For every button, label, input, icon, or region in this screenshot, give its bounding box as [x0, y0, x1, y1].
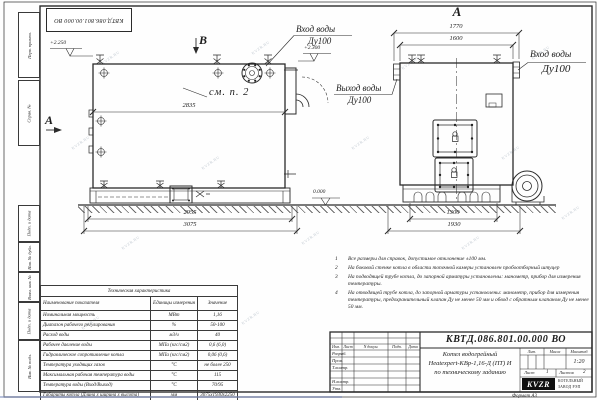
tech-cell: Температура уходящих газов [41, 361, 151, 371]
elevation-2250: +2.250 [50, 41, 66, 47]
tb-title-line2: Heatexpert-КВр-1,16-Д (ПТ) И [429, 361, 512, 368]
tb-sheets-value: 2 [583, 370, 586, 375]
tech-cell: 0,6 (6,0) [198, 341, 238, 351]
tb-row-utv: Утв. [332, 387, 341, 392]
tb-header-data: Дата [408, 345, 417, 349]
tech-cell: °С [151, 361, 198, 371]
tech-cell: 115 [198, 371, 238, 381]
view-b-label: В [199, 34, 207, 46]
tech-cell: МПа (кгс/см2) [151, 341, 198, 351]
tech-cell: МПа (кгс/см2) [151, 351, 198, 361]
dim-1600: 1600 [450, 36, 463, 43]
scan-artifact-line [0, 396, 342, 398]
tech-cell: °С [151, 371, 198, 381]
tb-row-tkontr: Т.контр. [332, 366, 348, 371]
tech-cell: МВт [151, 311, 198, 321]
note-text: Все размеры для справок, допустимое откл… [348, 256, 486, 263]
inlet-top-label-line1: Вход воды [296, 25, 335, 34]
tech-table-col-name: Наименование показателя [41, 297, 151, 311]
margin-stamp-label: Подп. и дата [27, 308, 32, 334]
note-number: 4 [335, 290, 348, 312]
tech-table-col-units: Единицы измерения [151, 297, 198, 311]
see-item-note: см. п. 2 [209, 88, 249, 99]
note-number: 1 [335, 256, 348, 263]
tech-cell: 1,16 [198, 311, 238, 321]
dim-3075: 3075 [184, 222, 197, 229]
inlet-right-label-line1: Вход воды [530, 51, 571, 61]
tb-scale-value: 1:20 [574, 359, 585, 365]
margin-stamp-label: Справ. № [26, 104, 31, 122]
tb-lit-label: Лит. [528, 350, 537, 354]
margin-stamp-podp-data-2: Подп. и дата [18, 302, 40, 340]
drawing-sheet: KVZR.RU KVZR.RU KVZR.RU KVZR.RU KVZR.RU … [0, 0, 600, 400]
tb-scale-label: Масштаб [570, 350, 587, 354]
tech-cell: 50-100 [198, 321, 238, 331]
tb-row-razrab: Разраб. [332, 352, 346, 357]
outlet-label-line2: Ду100 [348, 96, 371, 105]
notes-list: 1Все размеры для справок, допустимое отк… [335, 256, 591, 313]
margin-stamp-label: Инв. № дубл. [27, 245, 32, 270]
tech-cell: Расход воды [41, 331, 151, 341]
note-number: 2 [335, 265, 348, 272]
note-text: На отводящей трубе котла, до запорной ар… [348, 290, 591, 312]
tech-cell: % [151, 321, 198, 331]
elevation-0000: 0.000 [313, 190, 325, 196]
inlet-flange [242, 63, 262, 83]
format-note: Формат А3 [512, 394, 537, 399]
dim-2955: 2955 [184, 210, 197, 217]
tb-sheet-label: Лист [524, 371, 535, 376]
tb-mass-label: Масса [550, 350, 561, 354]
inlet-right-label-line2: Ду100 [542, 64, 570, 75]
note-text: На боковой стенке котла в области топочн… [348, 265, 559, 272]
margin-stamp-inv-dubl: Инв. № дубл. [18, 242, 40, 272]
kvzr-logo-text: KVZR [527, 380, 550, 389]
inlet-top-label-line2: Ду100 [308, 37, 331, 46]
tech-cell: не более 250 [198, 361, 238, 371]
tech-cell: °С [151, 381, 198, 391]
margin-stamp-label: Подп. и дата [27, 211, 32, 237]
dim-2835: 2835 [183, 103, 196, 110]
doc-number-stamp: КВТД.086.801.00.000 ВО [46, 8, 132, 32]
view-a-arrow-label: А [45, 114, 53, 126]
leader-lines [50, 36, 586, 206]
outlet-label-line1: Выход воды [336, 84, 381, 93]
margin-stamp-label: Инв. № подл. [27, 354, 32, 379]
tech-cell: 70/95 [198, 381, 238, 391]
dim-1770: 1770 [450, 24, 463, 31]
margin-stamp-label: Перв. примен. [27, 32, 32, 59]
margin-stamp-vzam-inv: Взам. инв. № [18, 272, 40, 302]
view-arrows [46, 38, 199, 133]
note-2: 2На боковой стенке котла в области топоч… [335, 265, 591, 272]
tb-title-line1: Котел водогрейный [443, 352, 497, 359]
tb-row-prov: Пров. [332, 359, 343, 364]
upper-door [433, 120, 477, 157]
tech-cell: Диапазон рабочего регулирования [41, 321, 151, 331]
tb-header-izm: Изм. [332, 345, 340, 349]
note-text: На подводящей трубе котла, до запорной а… [348, 274, 591, 289]
logo-caption-2: ЗАВОД РЭП [558, 385, 580, 389]
doc-number-stamp-text: КВТД.086.801.00.000 ВО [54, 17, 123, 23]
margin-stamp-podp-data-1: Подп. и дата [18, 205, 40, 242]
ground-hatch [78, 206, 556, 213]
tb-title-line3: по техническому заданию [434, 370, 506, 377]
tech-cell: Гидравлическое сопротивление котла [41, 351, 151, 361]
tech-cell: 40 [198, 331, 238, 341]
lower-door [435, 158, 473, 192]
tech-cell: Рабочее давление воды [41, 341, 151, 351]
dim-1300: 1300 [447, 210, 460, 217]
kvzr-logo: KVZR [522, 378, 555, 390]
note-1: 1Все размеры для справок, допустимое отк… [335, 256, 591, 263]
note-4: 4На отводящей трубе котла, до запорной а… [335, 290, 591, 312]
side-view [89, 55, 328, 203]
tech-cell: м3/ч [151, 331, 198, 341]
front-view [394, 55, 545, 205]
tech-cell: Максимальная рабочая температура воды [41, 371, 151, 381]
tb-row-nkontr: Н.контр. [332, 380, 349, 385]
dim-1930: 1930 [448, 222, 461, 229]
title-block-doc-number: КВТД.086.801.00.000 ВО [446, 335, 566, 345]
view-a-title: А [453, 5, 462, 18]
margin-stamp-label: Взам. инв. № [27, 275, 32, 300]
elevation-2300: +2.300 [304, 46, 320, 52]
tb-header-list: Лист [343, 345, 352, 349]
tech-cell: 0,06 (0,6) [198, 351, 238, 361]
tech-cell: Температура воды (Вход/Выход) [41, 381, 151, 391]
tb-header-podp: Подп. [392, 345, 402, 349]
note-number: 3 [335, 274, 348, 289]
fan-blower [512, 171, 544, 205]
tb-header-ndokum: N докум. [364, 345, 379, 349]
margin-stamp-perv-primen: Перв. примен. [18, 12, 40, 78]
tech-cell: Номинальная мощность [41, 311, 151, 321]
tech-table-col-value: Значение [198, 297, 238, 311]
tech-table: Техническая характеристика Наименование … [40, 285, 238, 400]
logo-caption-1: КОТЕЛЬНЫЙ [558, 379, 583, 383]
tb-sheet-value: 1 [546, 370, 549, 375]
margin-stamp-sprav-no: Справ. № [18, 80, 40, 146]
tb-sheets-label: Листов [559, 371, 574, 376]
note-3: 3На подводящей трубе котла, до запорной … [335, 274, 591, 289]
tech-table-title: Техническая характеристика [41, 286, 238, 297]
margin-stamp-inv-podl: Инв. № подл. [18, 340, 40, 392]
